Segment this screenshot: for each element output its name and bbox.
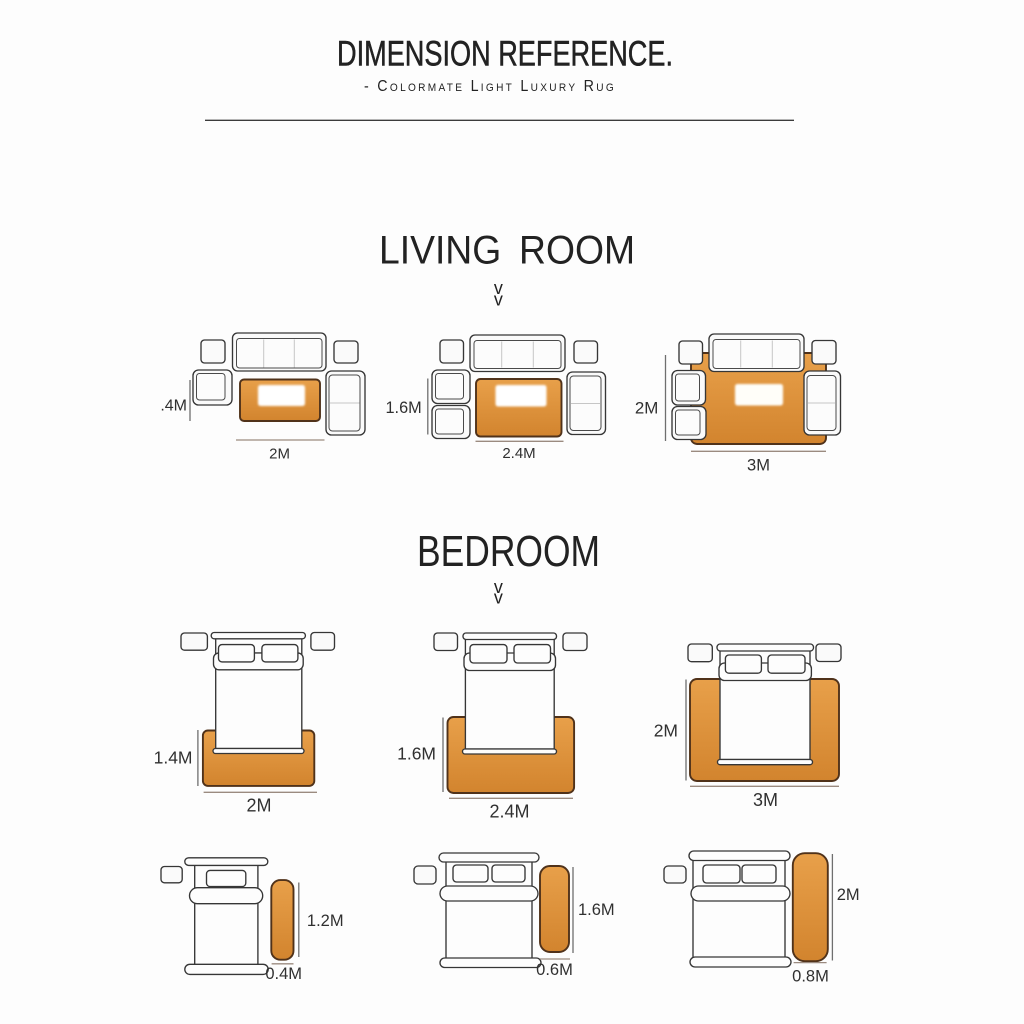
svg-text:2M: 2M bbox=[654, 721, 678, 741]
svg-text:1.6M: 1.6M bbox=[397, 744, 436, 764]
svg-text:v: v bbox=[494, 588, 503, 608]
svg-text:2.4M: 2.4M bbox=[502, 445, 535, 462]
svg-text:.4M: .4M bbox=[160, 398, 187, 415]
svg-text:0.8M: 0.8M bbox=[792, 968, 829, 986]
svg-text:0.4M: 0.4M bbox=[265, 965, 302, 983]
svg-text:1.6M: 1.6M bbox=[385, 399, 421, 417]
svg-text:DIMENSION REFERENCE.: DIMENSION REFERENCE. bbox=[337, 35, 673, 74]
svg-text:BEDROOM: BEDROOM bbox=[417, 527, 600, 576]
svg-text:3M: 3M bbox=[747, 457, 770, 475]
svg-text:2.4M: 2.4M bbox=[489, 802, 529, 822]
svg-text:2M: 2M bbox=[635, 399, 658, 418]
svg-text:1.6M: 1.6M bbox=[578, 901, 615, 919]
svg-text:2M: 2M bbox=[246, 796, 271, 816]
svg-text:v: v bbox=[494, 289, 503, 309]
svg-text:0.6M: 0.6M bbox=[536, 961, 573, 979]
svg-text:2M: 2M bbox=[269, 446, 290, 463]
svg-text:1.2M: 1.2M bbox=[307, 912, 344, 930]
svg-text:1.4M: 1.4M bbox=[154, 748, 193, 768]
svg-text:LIVING ROOM: LIVING ROOM bbox=[379, 229, 635, 273]
svg-text:2M: 2M bbox=[837, 886, 860, 904]
svg-text:3M: 3M bbox=[753, 790, 778, 810]
svg-text:- Colormate Light Luxury Rug: - Colormate Light Luxury Rug bbox=[364, 78, 616, 95]
